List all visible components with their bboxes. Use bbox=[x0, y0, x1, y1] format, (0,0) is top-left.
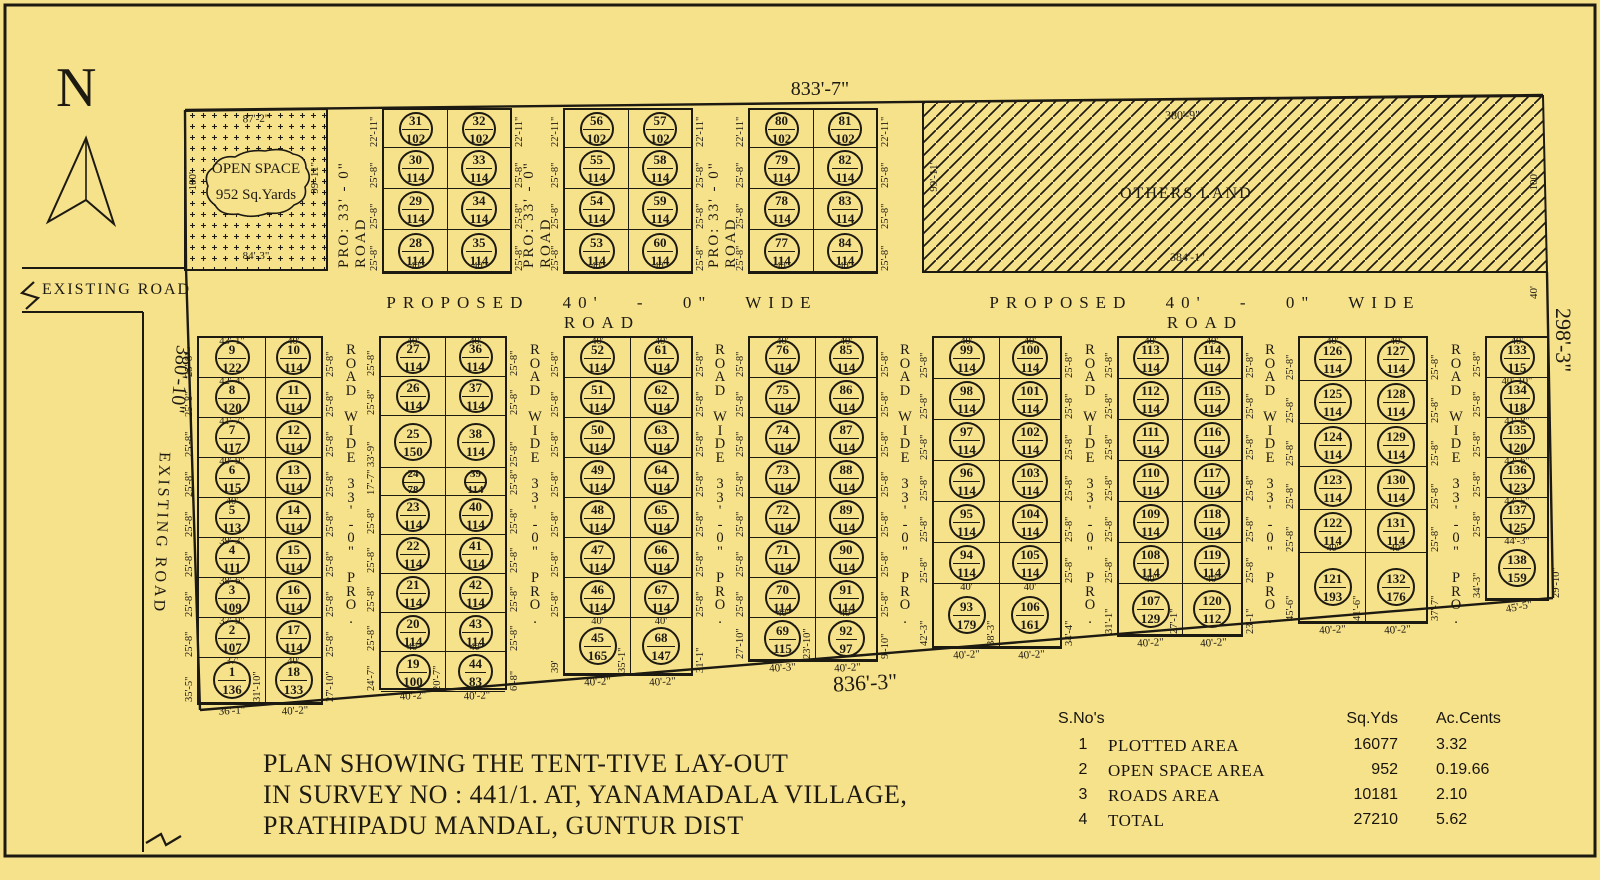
plot-number: 138 bbox=[1507, 552, 1527, 568]
plot-number: 73 bbox=[776, 462, 789, 478]
plot-area: 107 bbox=[218, 638, 246, 654]
plot-number: 81 bbox=[839, 113, 852, 129]
plot-cell-82: 82114 bbox=[813, 148, 876, 188]
plot-number: 125 bbox=[1323, 386, 1343, 402]
plot-bottom-dim: 40' bbox=[813, 261, 876, 272]
plot-number: 93 bbox=[960, 599, 973, 615]
plot-area: 114 bbox=[833, 398, 860, 414]
row-accents: 3.32 bbox=[1408, 736, 1518, 756]
plot-cell-20: 2011440'25'-8" bbox=[381, 613, 445, 651]
plot-side-dim: 25'-8" bbox=[695, 378, 706, 417]
plot-side-dim: 25'-8" bbox=[325, 498, 336, 537]
plot-area: 114 bbox=[953, 440, 980, 456]
plot-87-circle: 87114 bbox=[829, 420, 864, 455]
plot-cell-67: 6711425'-8" bbox=[630, 578, 691, 617]
area-table-header: S.No's Sq.Yds Ac.Cents bbox=[1058, 710, 1518, 728]
plot-side-dim: 25'-8" bbox=[509, 535, 520, 573]
plot-top-dim: 40' bbox=[1183, 337, 1241, 347]
plot-number: 57 bbox=[654, 113, 667, 129]
plot-32-circle: 32102 bbox=[462, 112, 496, 146]
plot-area: 114 bbox=[584, 358, 611, 374]
plot-cell-103: 10311425'-8" bbox=[999, 461, 1060, 501]
road-label-char: . bbox=[903, 613, 907, 627]
plot-cell-48: 4811425'-8" bbox=[565, 498, 630, 537]
plot-number: 118 bbox=[1203, 506, 1222, 522]
plot-area: 114 bbox=[400, 554, 427, 570]
plot-area: 122 bbox=[218, 358, 246, 374]
plot-105-circle: 105114 bbox=[1012, 545, 1048, 581]
plot-number: 15 bbox=[287, 542, 300, 558]
plot-side-dim: 23'-10" bbox=[802, 618, 813, 659]
plot-125-circle: 125114 bbox=[1314, 383, 1352, 421]
plot-side-dim: 25'-8" bbox=[325, 458, 336, 497]
plot-row: 7111425'-8"9011425'-8" bbox=[750, 538, 876, 578]
plot-cell-89: 8911425'-8" bbox=[815, 498, 876, 537]
plot-row: 40'5211425'-8"40'6111425'-8" bbox=[565, 338, 691, 378]
plot-row: 5011425'-8"6311425'-8" bbox=[565, 418, 691, 458]
plot-row: 791148211425'-8"25'-8" bbox=[750, 148, 876, 189]
plot-cell-11: 1111425'-8" bbox=[265, 378, 321, 417]
plot-top-dim: 40' bbox=[816, 337, 876, 347]
plot-area: 114 bbox=[768, 209, 795, 225]
plot-side-dim: 25'-8" bbox=[184, 458, 195, 497]
plot-side-dim: 25'-8" bbox=[1472, 418, 1483, 457]
plot-cell-64: 6411425'-8" bbox=[630, 458, 691, 497]
plot-number: 80 bbox=[775, 113, 788, 129]
plot-row: 38'-6"310925'-8"1611425'-8" bbox=[199, 578, 321, 618]
plot-44-circle: 4483 bbox=[458, 654, 493, 689]
plot-cell-39: 3911425'-8" bbox=[445, 468, 505, 495]
plot-row: 7011440'25'-8"9111440'25'-8" bbox=[750, 578, 876, 618]
plot-cell-125: 12511425'-8" bbox=[1300, 381, 1365, 423]
plot-number: 20 bbox=[407, 616, 420, 632]
plot-29-circle: 29114 bbox=[398, 191, 434, 227]
plot-row: 4711425'-8"6611425'-8" bbox=[565, 538, 691, 578]
others-land-dim-bottom: 384'-1" bbox=[1170, 250, 1205, 265]
plot-side-dim: 25'-8" bbox=[325, 618, 336, 657]
plot-number: 12 bbox=[287, 422, 300, 438]
plot-cell-62: 6211425'-8" bbox=[630, 378, 691, 417]
others-land-dim-top: 380'-9" bbox=[1165, 108, 1200, 124]
plot-area: 114 bbox=[1199, 481, 1226, 497]
plot-number: 46 bbox=[591, 582, 604, 598]
plot-number: 63 bbox=[655, 422, 668, 438]
plot-number: 53 bbox=[590, 235, 603, 251]
plot-cell-86: 8611425'-8" bbox=[815, 378, 876, 417]
plot-area: 114 bbox=[1137, 522, 1164, 538]
plot-row: 2111425'-8"4211425'-8" bbox=[381, 574, 505, 613]
plot-25-circle: 25150 bbox=[394, 423, 432, 461]
plot-cell-136: 42'-6"13612325'-8" bbox=[1487, 458, 1547, 497]
plot-side-dim: 22'-11" bbox=[369, 110, 380, 147]
road-label-char: E bbox=[901, 452, 910, 466]
plot-area: 117 bbox=[219, 438, 246, 454]
plot-side-dim: 25'-8" bbox=[366, 535, 377, 573]
plot-cell-6: 40'-9"611525'-8" bbox=[199, 458, 265, 497]
plot-row: 41'-8"13512025'-8" bbox=[1487, 418, 1547, 458]
open-space-dim-right: 99'-11" bbox=[309, 162, 321, 194]
plot-side-dim: 25'-8" bbox=[880, 230, 891, 271]
plot-number: 21 bbox=[407, 577, 420, 593]
plot-120-circle: 120112 bbox=[1193, 590, 1231, 628]
plot-side-dim: 25'-8" bbox=[550, 498, 561, 537]
plot-side-dim: 25'-8" bbox=[325, 418, 336, 457]
plot-cell-130: 13011425'-8" bbox=[1365, 467, 1426, 509]
plot-cell-78: 78114 bbox=[750, 189, 813, 229]
plot-area: 120 bbox=[1503, 438, 1531, 454]
plot-number: 68 bbox=[655, 630, 668, 646]
plot-cell-104: 10411425'-8" bbox=[999, 502, 1060, 542]
plot-93-circle: 93179 bbox=[948, 596, 986, 634]
plot-cell-118: 11811425'-8" bbox=[1182, 502, 1241, 542]
plot-number: 13 bbox=[287, 462, 300, 478]
plot-side-dim: 22'-11" bbox=[514, 110, 525, 147]
plot-side-dim: 25'-8" bbox=[1285, 338, 1296, 380]
plot-side-dim: 25'-8" bbox=[735, 338, 746, 377]
plot-row: 551145811425'-8"25'-8" bbox=[565, 148, 691, 189]
plot-34-circle: 34114 bbox=[461, 191, 497, 227]
plot-row: 42'-6"13612325'-8" bbox=[1487, 458, 1547, 498]
plot-cell-75: 7511425'-8" bbox=[750, 378, 815, 417]
plot-number: 119 bbox=[1203, 547, 1222, 563]
plot-side-dim: 25'-8" bbox=[1104, 502, 1115, 542]
plot-area: 114 bbox=[1137, 440, 1164, 456]
road-label-char: " bbox=[348, 546, 354, 560]
plot-number: 108 bbox=[1141, 547, 1161, 563]
plot-side-dim: 42'-3" bbox=[919, 584, 930, 646]
plot-33-circle: 33114 bbox=[461, 150, 497, 186]
plot-number: 74 bbox=[776, 422, 789, 438]
open-space-dim-left: 100' bbox=[187, 172, 199, 190]
road-label-char: " bbox=[1453, 546, 1459, 560]
plot-cell-97: 9711425'-8" bbox=[934, 420, 999, 460]
plot-number: 44 bbox=[469, 656, 482, 672]
plot-area: 114 bbox=[769, 438, 796, 454]
plot-top-dim: 40'-9" bbox=[199, 457, 265, 467]
header-sqyds: Sq.Yds bbox=[1308, 710, 1408, 728]
plot-area: 114 bbox=[769, 558, 796, 574]
plot-side-dim: 6'-8" bbox=[509, 652, 520, 691]
plot-118-circle: 118114 bbox=[1194, 504, 1230, 540]
pro-33-wide-road-label: ROADWIDE33'-0"PRO. bbox=[1446, 344, 1466, 626]
plot-row: 39'-3"411125'-8"1511425'-8" bbox=[199, 538, 321, 578]
plot-cell-100: 40'10011425'-8" bbox=[999, 338, 1060, 378]
plot-side-dim: 25'-8" bbox=[366, 574, 377, 612]
plot-row: 2211425'-8"4111425'-8" bbox=[381, 535, 505, 574]
plot-area: 114 bbox=[584, 598, 611, 614]
plot-row: 40'11311425'-8"40'11411425'-8" bbox=[1119, 338, 1241, 379]
plot-97-circle: 97114 bbox=[949, 422, 985, 458]
plot-area: 114 bbox=[462, 515, 489, 531]
plot-cell-54: 54114 bbox=[565, 189, 628, 229]
plot-row: 10911425'-8"11811425'-8" bbox=[1119, 502, 1241, 543]
plot-cell-123: 12311425'-8" bbox=[1300, 467, 1365, 509]
plot-row: 781148311425'-8"25'-8" bbox=[750, 189, 876, 230]
area-statement-table: S.No's Sq.Yds Ac.Cents 1 PLOTTED AREA 16… bbox=[1058, 710, 1518, 836]
road-label-char: . bbox=[1268, 613, 1272, 627]
plot-side-dim: 25'-8" bbox=[550, 189, 561, 229]
plot-area: 114 bbox=[462, 554, 489, 570]
plot-12-circle: 12114 bbox=[276, 420, 311, 455]
north-arrow-icon bbox=[48, 138, 114, 224]
plot-side-dim: 41'-6" bbox=[1352, 553, 1363, 621]
plot-21-circle: 21114 bbox=[396, 576, 430, 610]
plot-56-circle: 56102 bbox=[580, 112, 614, 146]
plot-cell-27: 40'2711425'-8" bbox=[381, 338, 445, 376]
plot-124-circle: 124114 bbox=[1314, 426, 1352, 464]
plot-24-circle: 2478 bbox=[402, 470, 425, 493]
plot-number: 130 bbox=[1386, 472, 1406, 488]
plot-39-circle: 39114 bbox=[464, 470, 487, 493]
plot-row: 12311425'-8"13011425'-8" bbox=[1300, 467, 1426, 510]
plot-area: 109 bbox=[218, 598, 246, 614]
road-label-char: E bbox=[347, 452, 356, 466]
plot-area: 114 bbox=[769, 478, 796, 494]
plot-cell-8: 42'-4"812025'-8" bbox=[199, 378, 265, 417]
plot-cell-122: 12211440'25'-8" bbox=[1300, 510, 1365, 552]
plot-number: 66 bbox=[655, 542, 668, 558]
plot-area: 114 bbox=[1319, 445, 1346, 461]
plot-123-circle: 123114 bbox=[1314, 469, 1352, 507]
plot-number: 103 bbox=[1020, 465, 1040, 481]
plot-112-circle: 112114 bbox=[1133, 381, 1169, 417]
plan-title-line2: IN SURVEY NO : 441/1. AT, YANAMADALA VIL… bbox=[263, 779, 907, 810]
road-break-icon bbox=[22, 282, 38, 309]
plot-number: 22 bbox=[407, 538, 420, 554]
plot-side-dim: 34'-4" bbox=[1064, 584, 1075, 646]
plot-row: 40'511325'-8"1411425'-8" bbox=[199, 498, 321, 538]
plot-cell-88: 8811425'-8" bbox=[815, 458, 876, 497]
plot-number: 43 bbox=[469, 616, 482, 632]
plot-row: 12211440'25'-8"13111440'25'-8" bbox=[1300, 510, 1426, 553]
plot-area: 114 bbox=[1017, 358, 1044, 374]
plot-side-dim: 25'-8" bbox=[1245, 338, 1256, 378]
plot-cell-106: 40'10616138'-3"34'-4" bbox=[999, 584, 1060, 646]
plot-side-dim: 25'-8" bbox=[1285, 467, 1296, 509]
plot-top-dim: 40' bbox=[199, 497, 265, 507]
plot-cell-87: 8711425'-8" bbox=[815, 418, 876, 457]
plot-number: 31 bbox=[409, 113, 422, 129]
plot-cell-49: 4911425'-8" bbox=[565, 458, 630, 497]
plot-number: 64 bbox=[655, 462, 668, 478]
plot-area: 114 bbox=[1383, 402, 1410, 418]
plot-area: 100 bbox=[399, 672, 427, 688]
plot-cell-47: 4711425'-8" bbox=[565, 538, 630, 577]
plot-number: 24 bbox=[408, 468, 419, 482]
plot-row: 801028110222'-11"22'-11" bbox=[750, 110, 876, 148]
plan-title-line3: PRATHIPADU MANDAL, GUNTUR DIST bbox=[263, 810, 907, 841]
plot-50-circle: 50114 bbox=[580, 420, 615, 455]
plot-30-circle: 30114 bbox=[398, 150, 434, 186]
row-sno: 1 bbox=[1058, 736, 1108, 756]
plot-side-dim: 25'-8" bbox=[550, 338, 561, 377]
pro-33-wide-road-label: ROADWIDE33'-0"PRO. bbox=[895, 344, 915, 626]
plot-number: 109 bbox=[1141, 506, 1161, 522]
plot-89-circle: 89114 bbox=[829, 500, 864, 535]
row-sqyds: 952 bbox=[1308, 761, 1408, 781]
plot-side-dim: 25'-8" bbox=[550, 458, 561, 497]
open-space-label: OPEN SPACE bbox=[185, 161, 327, 178]
plot-number: 30 bbox=[409, 152, 422, 168]
plot-number: 59 bbox=[654, 193, 667, 209]
plot-number: 32 bbox=[473, 113, 486, 129]
plot-104-circle: 104114 bbox=[1012, 504, 1048, 540]
plot-cell-31: 31102 bbox=[384, 110, 447, 147]
plot-number: 17 bbox=[287, 622, 300, 638]
plot-cell-42: 4211425'-8" bbox=[445, 574, 505, 612]
plot-area: 114 bbox=[833, 358, 860, 374]
plot-row: 2611425'-8"3711425'-8" bbox=[381, 377, 505, 416]
plot-area: 114 bbox=[280, 598, 307, 614]
plot-area: 147 bbox=[647, 646, 675, 662]
plot-area: 120 bbox=[218, 398, 246, 414]
plot-cell-68: 40'6814735'-1"31'-1" bbox=[630, 618, 691, 673]
plot-side-dim: 25'-8" bbox=[1245, 420, 1256, 460]
row-sno: 4 bbox=[1058, 811, 1108, 831]
plot-area: 114 bbox=[648, 398, 675, 414]
plot-14-circle: 14114 bbox=[276, 500, 311, 535]
plot-cell-43: 4311440'25'-8" bbox=[445, 613, 505, 651]
plot-cell-79: 79114 bbox=[750, 148, 813, 188]
plot-number: 122 bbox=[1323, 515, 1343, 531]
road-label-char: D bbox=[1265, 385, 1275, 399]
plot-area: 129 bbox=[1137, 609, 1165, 625]
plot-area: 114 bbox=[648, 358, 675, 374]
plot-area: 123 bbox=[1503, 478, 1531, 494]
plot-92-circle: 9297 bbox=[828, 620, 865, 657]
plot-129-circle: 129114 bbox=[1377, 426, 1415, 464]
plot-cell-131: 13111440'25'-8" bbox=[1365, 510, 1426, 552]
plot-side-dim: 25'-8" bbox=[1430, 381, 1441, 423]
plot-row: 41'-7"711725'-8"1211425'-8" bbox=[199, 418, 321, 458]
plot-top-dim: 44'-3" bbox=[1487, 537, 1547, 547]
plot-top-dim: 40'-10" bbox=[1487, 377, 1547, 387]
plot-side-dim: 29'-10" bbox=[1551, 538, 1562, 598]
road-label-char: D bbox=[1451, 385, 1461, 399]
plot-cell-50: 5011425'-8" bbox=[565, 418, 630, 457]
plot-top-dim: 37'-9" bbox=[199, 617, 265, 627]
plot-13-circle: 13114 bbox=[276, 460, 311, 495]
plot-number: 33 bbox=[473, 152, 486, 168]
row-name: OPEN SPACE AREA bbox=[1108, 761, 1308, 781]
plot-number: 37 bbox=[469, 380, 482, 396]
plot-66-circle: 66114 bbox=[644, 540, 679, 575]
plot-side-dim: 25'-8" bbox=[184, 338, 195, 377]
plot-area: 114 bbox=[1017, 481, 1044, 497]
plot-74-circle: 74114 bbox=[765, 420, 800, 455]
plot-area: 114 bbox=[648, 438, 675, 454]
plot-number: 34 bbox=[473, 193, 486, 209]
plot-side-dim: 25'-8" bbox=[880, 498, 891, 537]
road-label-char: E bbox=[531, 452, 540, 466]
bottom-block-8: 40'13311525'-8"40'-10"13411825'-8"41'-8"… bbox=[1485, 336, 1549, 601]
plot-side-dim: 25'-8" bbox=[366, 338, 377, 376]
plot-number: 90 bbox=[840, 542, 853, 558]
plot-number: 88 bbox=[840, 462, 853, 478]
plot-number: 83 bbox=[839, 193, 852, 209]
plot-side-dim: 25'-8" bbox=[735, 578, 746, 617]
plot-row: 12119345'-6"13217641'-6"37'-7" bbox=[1300, 553, 1426, 622]
plot-top-dim: 40' bbox=[266, 337, 321, 347]
plot-area: 114 bbox=[953, 563, 980, 579]
plot-cell-61: 40'6111425'-8" bbox=[630, 338, 691, 377]
plot-side-dim: 25'-8" bbox=[880, 378, 891, 417]
plot-area: 115 bbox=[769, 639, 796, 655]
plot-side-dim: 22'-11" bbox=[695, 110, 706, 147]
bottom-block-6: 40'11311425'-8"40'11411425'-8"11211425'-… bbox=[1117, 336, 1243, 637]
plot-row: 40'2711425'-8"40'3611425'-8" bbox=[381, 338, 505, 377]
plot-top-dim: 40' bbox=[1366, 337, 1426, 347]
plot-area: 114 bbox=[953, 522, 980, 538]
plot-area: 111 bbox=[219, 558, 245, 574]
plot-area: 114 bbox=[400, 593, 427, 609]
plot-area: 114 bbox=[833, 558, 860, 574]
plot-31-circle: 31102 bbox=[399, 112, 433, 146]
plot-cell-24: 247817'-7" bbox=[381, 468, 445, 495]
plot-81-circle: 81102 bbox=[828, 112, 862, 146]
plot-area: 133 bbox=[280, 680, 308, 696]
plot-number: 105 bbox=[1020, 547, 1040, 563]
plot-area: 114 bbox=[280, 358, 307, 374]
plot-bottom-dim: 40' bbox=[446, 643, 505, 652]
plot-side-dim: 25'-8" bbox=[880, 538, 891, 577]
plot-cell-99: 40'9911425'-8" bbox=[934, 338, 999, 378]
plot-number: 97 bbox=[960, 424, 973, 440]
plot-cell-25: 2515033'-9" bbox=[381, 416, 445, 467]
plot-number: 129 bbox=[1386, 429, 1406, 445]
plot-number: 96 bbox=[960, 465, 973, 481]
top-block-2: 561025710222'-11"22'-11"551145811425'-8"… bbox=[563, 108, 693, 274]
plot-side-dim: 22'-11" bbox=[550, 110, 561, 147]
plot-side-dim: 33'-9" bbox=[366, 416, 377, 467]
plot-area: 114 bbox=[1319, 488, 1346, 504]
plot-side-dim: 25'-8" bbox=[695, 538, 706, 577]
plot-cell-57: 57102 bbox=[628, 110, 691, 147]
plot-area: 114 bbox=[400, 515, 427, 531]
plot-cell-129: 12911425'-8" bbox=[1365, 424, 1426, 466]
plot-90-circle: 90114 bbox=[829, 540, 864, 575]
plot-side-dim: 25'-8" bbox=[695, 578, 706, 617]
plot-side-dim: 27'-1" bbox=[1169, 584, 1180, 634]
plot-cell-111: 11111425'-8" bbox=[1119, 420, 1182, 460]
plot-row: 12411425'-8"12911425'-8" bbox=[1300, 424, 1426, 467]
plot-number: 51 bbox=[591, 382, 604, 398]
plot-number: 107 bbox=[1141, 593, 1161, 609]
plot-side-dim: 25'-8" bbox=[509, 338, 520, 376]
plot-cell-56: 56102 bbox=[565, 110, 628, 147]
plot-row: 561025710222'-11"22'-11" bbox=[565, 110, 691, 148]
plot-cell-135: 41'-8"13512025'-8" bbox=[1487, 418, 1547, 457]
plot-side-dim: 25'-8" bbox=[735, 418, 746, 457]
plot-row: 43'-5"13712525'-8" bbox=[1487, 498, 1547, 538]
others-land-dim-right: 100' bbox=[1528, 172, 1540, 190]
plot-number: 40 bbox=[469, 499, 482, 515]
plot-number: 48 bbox=[591, 502, 604, 518]
plot-cell-113: 40'11311425'-8" bbox=[1119, 338, 1182, 378]
plot-side-dim: 25'-8" bbox=[550, 230, 561, 271]
plot-side-dim: 25'-8" bbox=[1472, 338, 1483, 377]
plot-area: 114 bbox=[1017, 522, 1044, 538]
row-name: ROADS AREA bbox=[1108, 786, 1308, 806]
plot-area: 114 bbox=[462, 442, 489, 458]
plot-area: 159 bbox=[1503, 568, 1531, 584]
plot-side-dim: 25'-8" bbox=[509, 574, 520, 612]
plot-side-dim: 25'-8" bbox=[184, 618, 195, 657]
plot-number: 121 bbox=[1323, 571, 1343, 587]
plot-132-circle: 132176 bbox=[1377, 568, 1415, 606]
plot-side-dim: 25'-8" bbox=[1285, 424, 1296, 466]
plot-number: 16 bbox=[287, 582, 300, 598]
